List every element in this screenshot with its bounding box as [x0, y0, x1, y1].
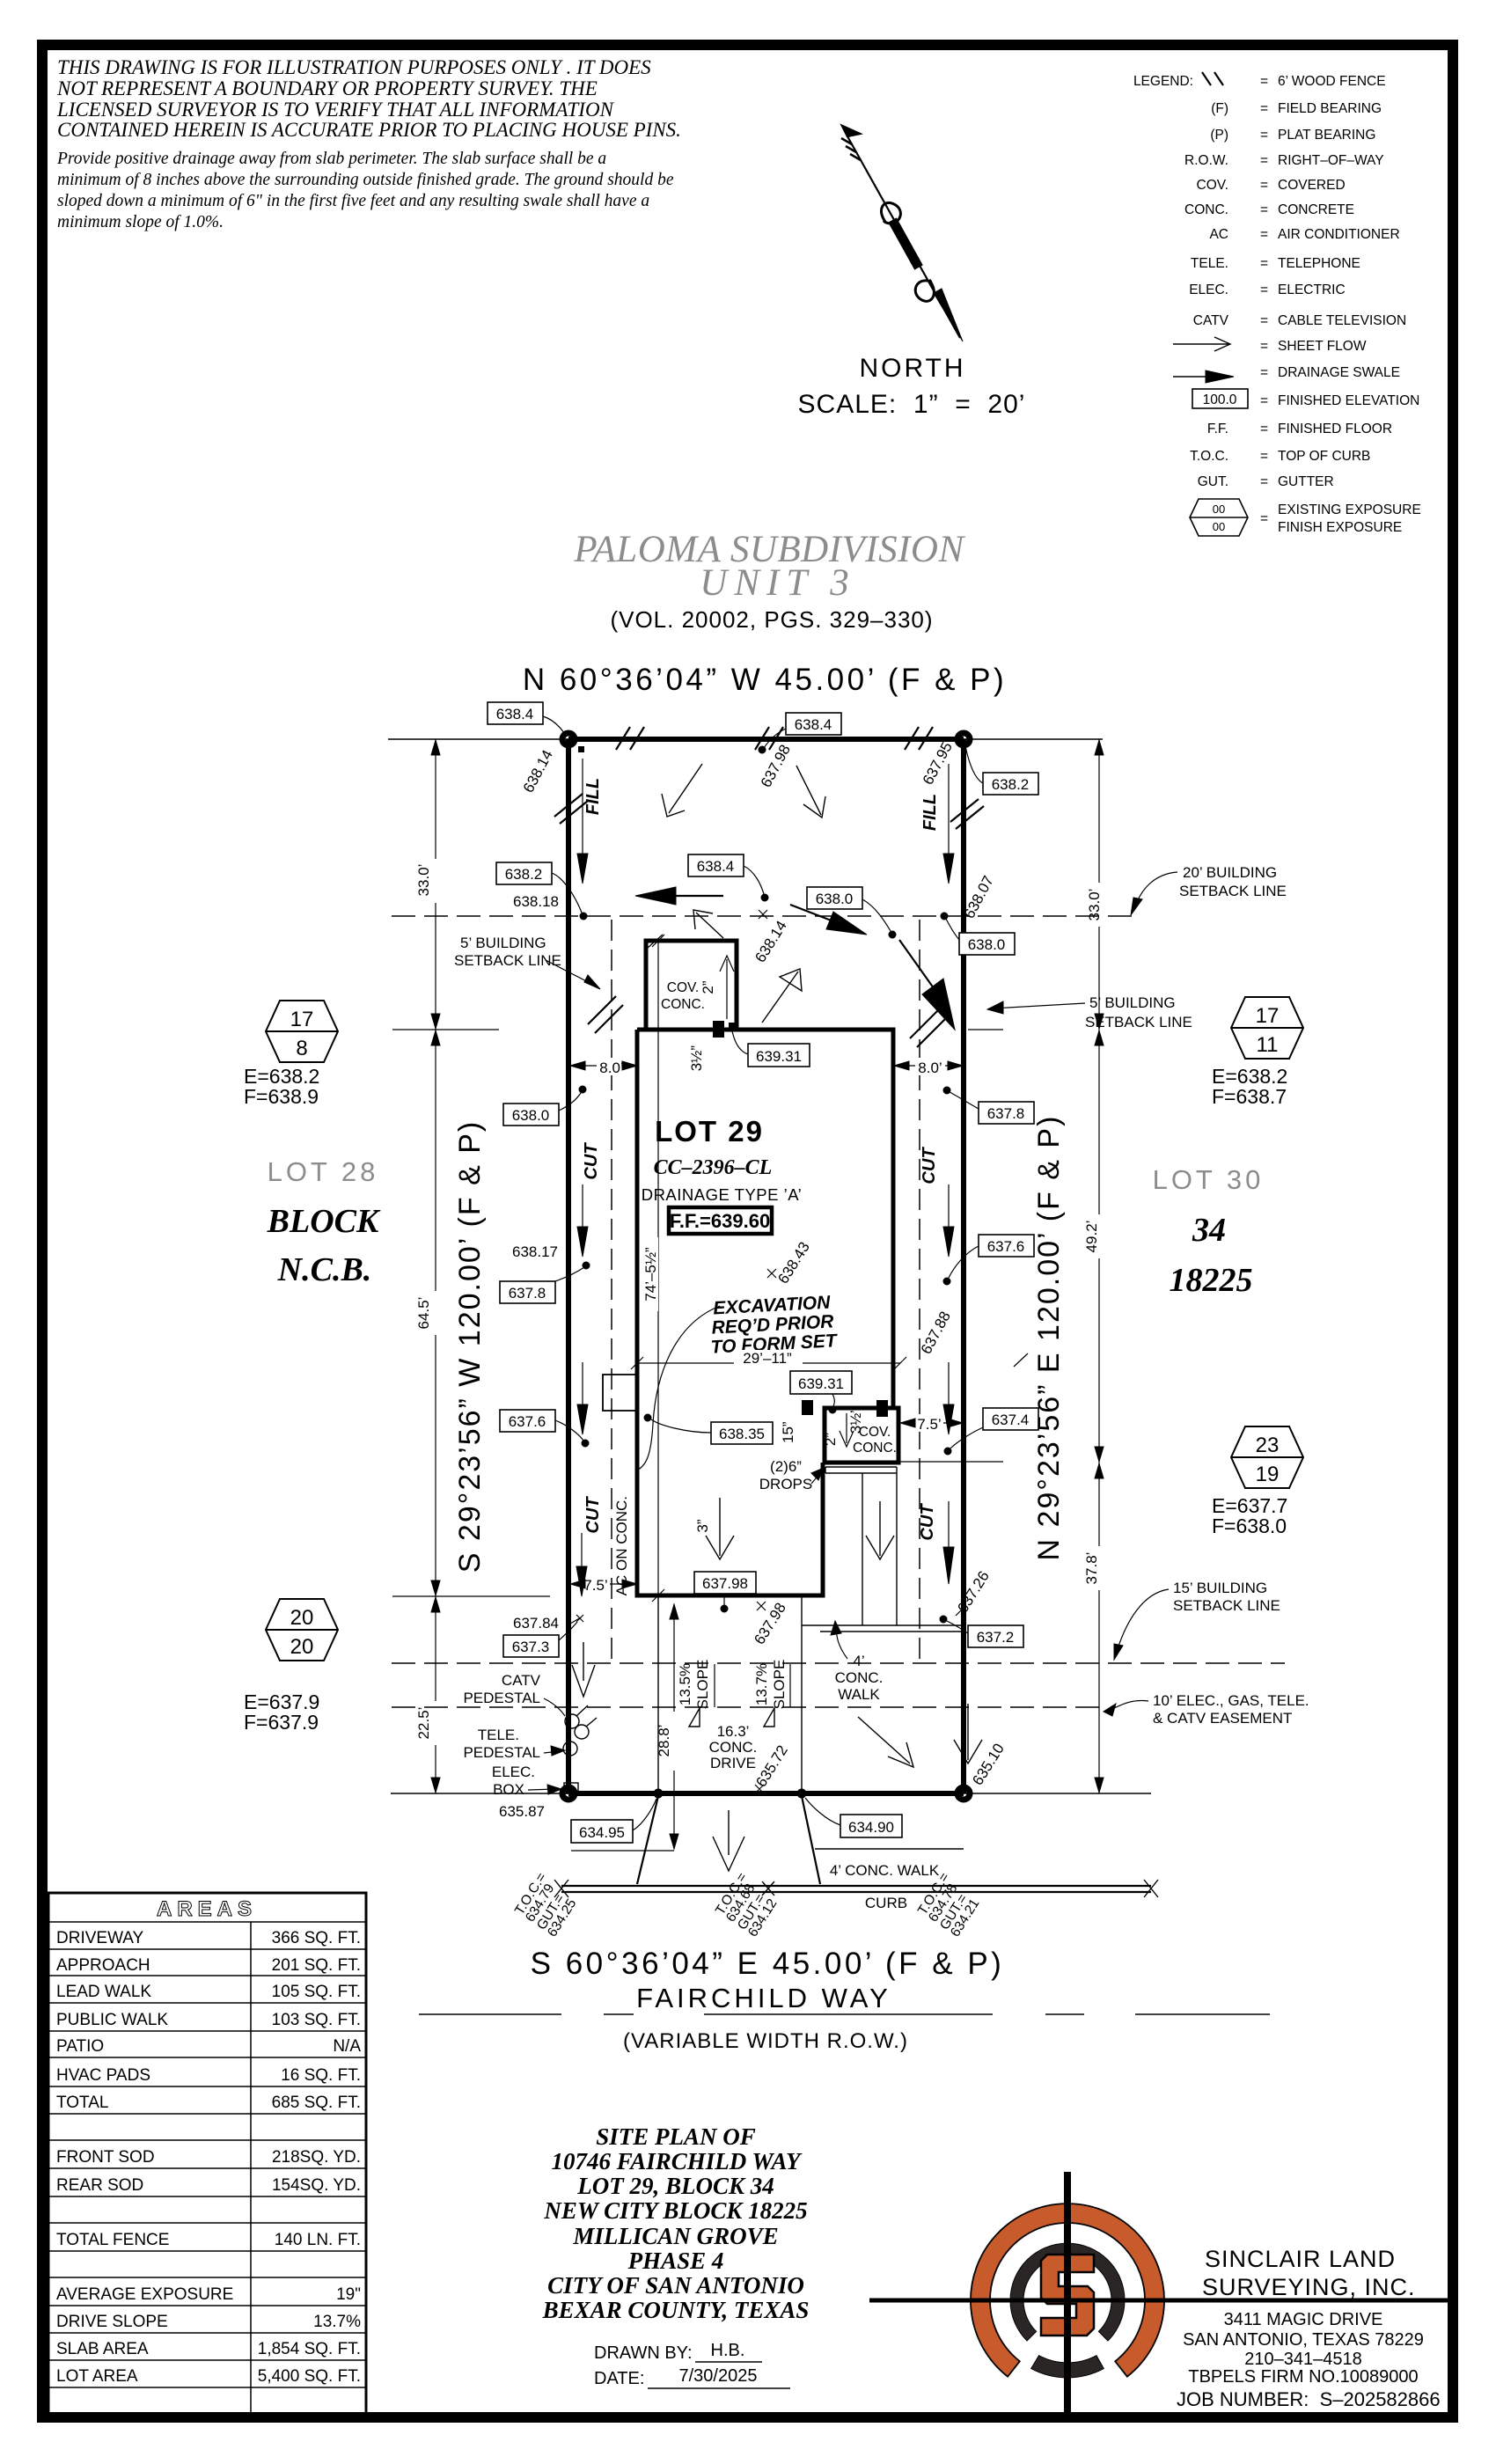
svg-text:10’ ELEC., GAS, TELE.: 10’ ELEC., GAS, TELE.: [1153, 1692, 1309, 1709]
svg-text:3”: 3”: [694, 1519, 711, 1532]
svg-text:=: =: [1260, 422, 1268, 436]
svg-text:EXISTING EXPOSURE: EXISTING EXPOSURE: [1278, 502, 1421, 517]
svg-text:TELE.: TELE.: [478, 1727, 519, 1743]
svg-text:AREAS: AREAS: [157, 1897, 257, 1921]
svg-text:(VOL. 20002, PGS. 329–330): (VOL. 20002, PGS. 329–330): [610, 606, 933, 633]
svg-text:6’ WOOD FENCE: 6’ WOOD FENCE: [1278, 74, 1386, 89]
svg-text:T.O.C.: T.O.C.: [1190, 449, 1228, 464]
svg-text:CATV: CATV: [502, 1672, 541, 1689]
svg-text:R.O.W.: R.O.W.: [1184, 153, 1228, 168]
svg-text:COV.: COV.: [1197, 178, 1228, 193]
svg-text:16.3’: 16.3’: [717, 1723, 750, 1740]
svg-text:SLOPE: SLOPE: [694, 1660, 711, 1710]
svg-text:minimum of 8 inches above the: minimum of 8 inches above the surroundin…: [57, 171, 674, 189]
svg-text:64.5’: 64.5’: [415, 1297, 432, 1330]
svg-text:=: =: [1260, 511, 1268, 526]
svg-text:FILL: FILL: [583, 778, 603, 815]
svg-text:GUT.: GUT.: [1198, 474, 1228, 489]
svg-text:13.5%: 13.5%: [677, 1663, 693, 1705]
svg-text:=: =: [1260, 339, 1268, 354]
svg-text:WALK: WALK: [838, 1686, 880, 1703]
svg-text:=: =: [1260, 449, 1268, 464]
svg-text:N/A: N/A: [333, 2037, 361, 2056]
svg-text:F=638.9: F=638.9: [244, 1085, 319, 1108]
svg-text:8: 8: [296, 1037, 307, 1060]
svg-text:19": 19": [336, 2285, 361, 2304]
svg-text:2”: 2”: [822, 1433, 839, 1446]
svg-text:SETBACK LINE: SETBACK LINE: [1179, 883, 1287, 899]
svg-text:20: 20: [290, 1635, 314, 1659]
svg-text:DATE:: DATE:: [594, 2369, 644, 2388]
svg-text:DRIVEWAY: DRIVEWAY: [56, 1929, 144, 1947]
svg-text:=: =: [1260, 474, 1268, 489]
svg-text:COV.: COV.: [667, 980, 699, 995]
svg-text:N.C.B.: N.C.B.: [277, 1251, 372, 1288]
svg-text:=: =: [1260, 256, 1268, 271]
svg-text:CUT: CUT: [920, 1147, 939, 1184]
svg-text:=: =: [1260, 282, 1268, 297]
svg-text:637.84: 637.84: [513, 1615, 559, 1632]
svg-text:5,400 SQ. FT.: 5,400 SQ. FT.: [258, 2367, 361, 2386]
svg-text:3½”: 3½”: [847, 1408, 864, 1434]
svg-text:LEAD WALK: LEAD WALK: [56, 1983, 151, 2001]
svg-text:DROPS: DROPS: [759, 1476, 812, 1492]
svg-text:HVAC PADS: HVAC PADS: [56, 2066, 150, 2085]
svg-text:637.6: 637.6: [509, 1413, 546, 1430]
svg-text:634.90: 634.90: [848, 1819, 894, 1836]
svg-text:CUT: CUT: [582, 1142, 601, 1180]
svg-text:20’ BUILDING: 20’ BUILDING: [1183, 864, 1277, 881]
svg-text:637.2: 637.2: [977, 1629, 1015, 1646]
svg-text:TELEPHONE: TELEPHONE: [1278, 256, 1360, 271]
svg-text:685 SQ. FT.: 685 SQ. FT.: [272, 2094, 361, 2112]
svg-text:37.8’: 37.8’: [1083, 1552, 1100, 1585]
svg-text:MILLICAN GROVE: MILLICAN GROVE: [572, 2223, 778, 2249]
svg-text:33.0’: 33.0’: [1086, 889, 1103, 921]
svg-text:00: 00: [1213, 520, 1225, 533]
svg-text:DRAINAGE TYPE ’A’: DRAINAGE TYPE ’A’: [642, 1185, 803, 1204]
svg-text:34: 34: [1192, 1212, 1226, 1249]
svg-text:LOT 28: LOT 28: [268, 1156, 379, 1187]
svg-text:7.5’: 7.5’: [583, 1577, 607, 1594]
svg-text:637.98: 637.98: [702, 1575, 748, 1592]
svg-text:NORTH: NORTH: [859, 354, 965, 383]
svg-text:S 29°23’56” W 120.00’ (F & P): S 29°23’56” W 120.00’ (F & P): [453, 1120, 487, 1573]
svg-text:BLOCK: BLOCK: [267, 1203, 381, 1240]
svg-text:154SQ. YD.: 154SQ. YD.: [272, 2176, 361, 2195]
svg-text:SCALE: 1” = 20’: SCALE: 1” = 20’: [798, 390, 1026, 419]
svg-text:17: 17: [290, 1008, 314, 1031]
svg-text:637.8: 637.8: [987, 1105, 1025, 1122]
svg-text:N 60°36’04” W 45.00’ (F & P): N 60°36’04” W 45.00’ (F & P): [523, 663, 1007, 697]
svg-text:H.B.: H.B.: [711, 2341, 745, 2360]
svg-text:638.35: 638.35: [719, 1426, 765, 1442]
svg-text:PLAT BEARING: PLAT BEARING: [1278, 128, 1375, 143]
svg-text:22.5’: 22.5’: [415, 1707, 432, 1740]
svg-text:minimum slope of 1.0%.: minimum slope of 1.0%.: [57, 213, 224, 231]
svg-text:3411 MAGIC DRIVE: 3411 MAGIC DRIVE: [1224, 2310, 1383, 2329]
svg-text:CURB: CURB: [865, 1895, 907, 1911]
svg-text:SETBACK LINE: SETBACK LINE: [454, 952, 561, 969]
svg-text:=: =: [1260, 128, 1268, 143]
svg-text:13.7%: 13.7%: [313, 2313, 361, 2331]
svg-text:10746 FAIRCHILD WAY: 10746 FAIRCHILD WAY: [551, 2148, 803, 2174]
svg-text:F.F.=639.60: F.F.=639.60: [670, 1210, 770, 1232]
svg-text:APPROACH: APPROACH: [56, 1956, 150, 1975]
svg-text:218SQ. YD.: 218SQ. YD.: [272, 2148, 361, 2167]
svg-text:FRONT SOD: FRONT SOD: [56, 2148, 155, 2167]
svg-text:N 29°23’56” E 120.00’ (F & P): N 29°23’56” E 120.00’ (F & P): [1032, 1115, 1066, 1561]
svg-text:FAIRCHILD WAY: FAIRCHILD WAY: [636, 1983, 891, 2013]
svg-text:CONC.: CONC.: [661, 997, 705, 1012]
svg-text:33.0’: 33.0’: [415, 864, 432, 897]
svg-text:19: 19: [1256, 1463, 1280, 1486]
svg-text:CATV: CATV: [1193, 313, 1229, 328]
svg-text:SHEET FLOW: SHEET FLOW: [1278, 339, 1367, 354]
svg-text:F=638.0: F=638.0: [1212, 1514, 1287, 1537]
svg-text:=: =: [1260, 178, 1268, 193]
svg-text:PATIO: PATIO: [56, 2037, 104, 2056]
svg-text:=: =: [1260, 365, 1268, 380]
svg-text:16 SQ. FT.: 16 SQ. FT.: [281, 2066, 361, 2085]
svg-text:CITY OF SAN ANTONIO: CITY OF SAN ANTONIO: [547, 2272, 804, 2299]
svg-text:638.0: 638.0: [816, 891, 854, 907]
svg-text:LOT 29: LOT 29: [655, 1115, 764, 1148]
svg-text:201 SQ. FT.: 201 SQ. FT.: [272, 1956, 361, 1975]
svg-text:15’ BUILDING: 15’ BUILDING: [1173, 1580, 1267, 1596]
svg-text:638.4: 638.4: [496, 706, 534, 722]
svg-text:4’: 4’: [853, 1653, 864, 1669]
svg-text:RIGHT–OF–WAY: RIGHT–OF–WAY: [1278, 153, 1384, 168]
svg-text:S 60°36’04” E 45.00’ (F & P): S 60°36’04” E 45.00’ (F & P): [531, 1947, 1005, 1981]
svg-text:SAN ANTONIO, TEXAS 78229: SAN ANTONIO, TEXAS 78229: [1183, 2330, 1424, 2350]
svg-text:F=638.7: F=638.7: [1212, 1085, 1287, 1108]
svg-text:638.18: 638.18: [513, 893, 559, 910]
svg-text:SLOPE: SLOPE: [771, 1660, 788, 1710]
svg-text:JOB NUMBER: S–202582866: JOB NUMBER: S–202582866: [1177, 2388, 1441, 2410]
svg-text:& CATV EASEMENT: & CATV EASEMENT: [1153, 1710, 1292, 1727]
svg-text:49.2’: 49.2’: [1083, 1221, 1100, 1253]
svg-text:638.4: 638.4: [795, 716, 832, 733]
svg-text:FINISHED ELEVATION: FINISHED ELEVATION: [1278, 393, 1419, 408]
svg-text:LICENSED SURVEYOR IS TO VERIFY: LICENSED SURVEYOR IS TO VERIFY THAT ALL …: [56, 99, 615, 121]
svg-text:639.31: 639.31: [756, 1048, 802, 1065]
svg-text:635.87: 635.87: [499, 1803, 545, 1820]
svg-text:LEGEND:: LEGEND:: [1133, 74, 1193, 89]
svg-text:8.0’: 8.0’: [918, 1060, 942, 1076]
svg-text:23: 23: [1256, 1434, 1280, 1457]
svg-text:4’ CONC. WALK: 4’ CONC. WALK: [830, 1862, 940, 1879]
svg-text:1,854 SQ. FT.: 1,854 SQ. FT.: [258, 2340, 361, 2358]
svg-text:NOT REPRESENT A BOUNDARY OR PR: NOT REPRESENT A BOUNDARY OR PROPERTY SUR…: [56, 77, 598, 99]
svg-text:CONCRETE: CONCRETE: [1278, 202, 1354, 217]
svg-text:F.F.: F.F.: [1207, 422, 1228, 436]
svg-text:F=637.9: F=637.9: [244, 1711, 319, 1734]
svg-text:140 LN. FT.: 140 LN. FT.: [275, 2231, 361, 2249]
svg-text:(P): (P): [1210, 128, 1228, 143]
svg-text:PEDESTAL: PEDESTAL: [463, 1744, 540, 1761]
svg-text:FINISHED FLOOR: FINISHED FLOOR: [1278, 422, 1392, 436]
svg-text:BOX: BOX: [493, 1781, 524, 1798]
svg-text:100.0: 100.0: [1203, 392, 1237, 407]
svg-text:CONC.: CONC.: [835, 1669, 884, 1686]
svg-text:20: 20: [290, 1606, 314, 1630]
svg-text:7.5’: 7.5’: [917, 1416, 941, 1433]
svg-text:DRAINAGE SWALE: DRAINAGE SWALE: [1278, 365, 1400, 380]
svg-text:AC: AC: [1209, 227, 1228, 242]
svg-text:AIR CONDITIONER: AIR CONDITIONER: [1278, 227, 1400, 242]
svg-text:SETBACK LINE: SETBACK LINE: [1173, 1597, 1280, 1614]
svg-text:REAR SOD: REAR SOD: [56, 2176, 143, 2195]
svg-text:7/30/2025: 7/30/2025: [679, 2366, 758, 2386]
svg-text:638.4: 638.4: [697, 858, 735, 875]
svg-text:TOTAL FENCE: TOTAL FENCE: [56, 2231, 169, 2249]
svg-text:13.7%: 13.7%: [753, 1663, 770, 1705]
svg-text:638.0: 638.0: [968, 936, 1006, 953]
svg-text:637.3: 637.3: [512, 1639, 550, 1655]
svg-text:74’–5½”: 74’–5½”: [642, 1247, 659, 1302]
svg-text:29’–11”: 29’–11”: [743, 1350, 792, 1367]
svg-text:105 SQ. FT.: 105 SQ. FT.: [272, 1983, 361, 2001]
svg-text:AVERAGE EXPOSURE: AVERAGE EXPOSURE: [56, 2285, 233, 2304]
svg-text:TOTAL: TOTAL: [56, 2094, 108, 2112]
svg-text:637.8: 637.8: [509, 1285, 546, 1302]
svg-text:SINCLAIR LAND: SINCLAIR LAND: [1205, 2246, 1396, 2272]
svg-text:11: 11: [1257, 1033, 1279, 1057]
svg-text:(VARIABLE WIDTH R.O.W.): (VARIABLE WIDTH R.O.W.): [623, 2029, 908, 2053]
svg-text:TBPELS FIRM NO.10089000: TBPELS FIRM NO.10089000: [1188, 2367, 1418, 2387]
svg-text:15”: 15”: [780, 1421, 796, 1443]
svg-text:FIELD BEARING: FIELD BEARING: [1278, 101, 1382, 116]
svg-text:638.2: 638.2: [505, 866, 543, 883]
svg-text:PHASE 4: PHASE 4: [627, 2248, 724, 2274]
svg-text:28.8’: 28.8’: [656, 1725, 672, 1757]
svg-text:=: =: [1260, 202, 1268, 217]
svg-text:=: =: [1260, 101, 1268, 116]
svg-text:CONTAINED HEREIN IS ACCURATE P: CONTAINED HEREIN IS ACCURATE PRIOR TO PL…: [57, 119, 681, 141]
svg-text:103 SQ. FT.: 103 SQ. FT.: [272, 2011, 361, 2029]
svg-text:637.4: 637.4: [992, 1412, 1030, 1428]
svg-text:CUT: CUT: [918, 1503, 937, 1541]
svg-text:PEDESTAL: PEDESTAL: [463, 1690, 540, 1706]
svg-text:3½”: 3½”: [688, 1045, 705, 1072]
svg-text:NEW CITY BLOCK 18225: NEW CITY BLOCK 18225: [543, 2197, 807, 2224]
svg-text:638.17: 638.17: [512, 1243, 558, 1260]
svg-text:=: =: [1260, 227, 1268, 242]
svg-text:GUTTER: GUTTER: [1278, 474, 1334, 489]
svg-text:SURVEYING, INC.: SURVEYING, INC.: [1202, 2274, 1416, 2300]
svg-text:637.6: 637.6: [987, 1238, 1025, 1255]
svg-text:(2)6”: (2)6”: [770, 1458, 802, 1475]
svg-text:LOT AREA: LOT AREA: [56, 2367, 138, 2386]
svg-text:(F): (F): [1211, 101, 1228, 116]
svg-text:DRIVE: DRIVE: [710, 1755, 756, 1771]
svg-text:5’ BUILDING: 5’ BUILDING: [1089, 994, 1176, 1011]
svg-text:THIS DRAWING IS FOR ILLUSTRATI: THIS DRAWING IS FOR ILLUSTRATION PURPOSE…: [57, 56, 651, 78]
svg-text:639.31: 639.31: [798, 1375, 844, 1392]
svg-text:ELEC.: ELEC.: [492, 1764, 535, 1780]
svg-text:=: =: [1260, 393, 1268, 408]
svg-text:210–341–4518: 210–341–4518: [1244, 2350, 1361, 2369]
svg-text:SLAB AREA: SLAB AREA: [56, 2340, 149, 2358]
svg-text:2”: 2”: [700, 980, 716, 994]
svg-text:CONC.: CONC.: [709, 1739, 758, 1756]
svg-text:8.0’: 8.0’: [599, 1060, 623, 1076]
svg-text:Provide positive drainage away: Provide positive drainage away from slab…: [56, 150, 606, 168]
svg-text:DRIVE SLOPE: DRIVE SLOPE: [56, 2313, 168, 2331]
svg-text:18225: 18225: [1170, 1262, 1253, 1299]
svg-text:DRAWN BY:: DRAWN BY:: [594, 2343, 693, 2363]
svg-text:CUT: CUT: [583, 1496, 603, 1534]
svg-text:CONC.: CONC.: [1184, 202, 1228, 217]
svg-text:CABLE TELEVISION: CABLE TELEVISION: [1278, 313, 1406, 328]
svg-text:=: =: [1260, 153, 1268, 168]
svg-text:366 SQ. FT.: 366 SQ. FT.: [272, 1929, 361, 1947]
svg-text:638.2: 638.2: [992, 776, 1030, 793]
svg-text:LOT 29, BLOCK 34: LOT 29, BLOCK 34: [576, 2173, 774, 2199]
svg-text:TOP OF CURB: TOP OF CURB: [1278, 449, 1370, 464]
svg-text:ELECTRIC: ELECTRIC: [1278, 282, 1346, 297]
svg-text:LOT 30: LOT 30: [1153, 1164, 1265, 1195]
svg-text:FINISH EXPOSURE: FINISH EXPOSURE: [1278, 520, 1402, 535]
svg-text:FILL: FILL: [920, 794, 940, 831]
svg-text:00: 00: [1213, 502, 1225, 516]
svg-text:BEXAR COUNTY, TEXAS: BEXAR COUNTY, TEXAS: [542, 2297, 810, 2323]
svg-text:634.95: 634.95: [579, 1824, 625, 1841]
svg-text:638.0: 638.0: [512, 1107, 550, 1124]
svg-text:=: =: [1260, 313, 1268, 328]
svg-text:CC–2396–CL: CC–2396–CL: [654, 1156, 773, 1179]
svg-text:PUBLIC WALK: PUBLIC WALK: [56, 2011, 168, 2029]
svg-text:TELE.: TELE.: [1191, 256, 1228, 271]
svg-text:5’ BUILDING: 5’ BUILDING: [460, 935, 546, 951]
svg-text:UNIT 3: UNIT 3: [700, 562, 855, 604]
svg-text:sloped down a minimum of 6" in: sloped down a minimum of 6" in the first…: [57, 192, 649, 210]
svg-text:SITE PLAN OF: SITE PLAN OF: [596, 2123, 756, 2150]
svg-text:ELEC.: ELEC.: [1189, 282, 1228, 297]
svg-text:COVERED: COVERED: [1278, 178, 1346, 193]
svg-text:=: =: [1260, 74, 1268, 89]
svg-text:17: 17: [1256, 1004, 1280, 1028]
svg-text:CONC.: CONC.: [853, 1441, 897, 1456]
